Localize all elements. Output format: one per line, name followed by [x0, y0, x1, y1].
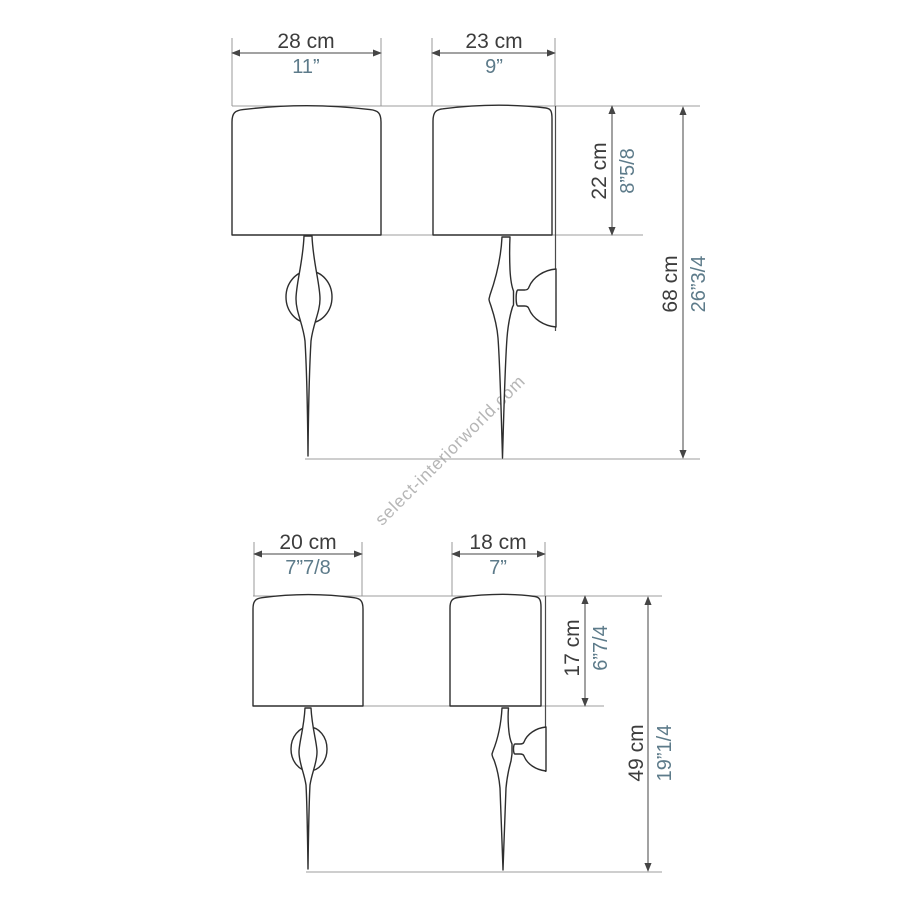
dim-label-cm: 68 cm	[659, 255, 682, 312]
wall-bracket	[516, 269, 556, 327]
dim-label-inch: 7”	[489, 557, 507, 579]
large-sconce-figure: 28 cm 11” 23 cm 9” 22 cm 8”5/8 68 cm 26”…	[232, 30, 710, 459]
large-front-view	[232, 106, 381, 456]
dim-label-inch: 7”7/8	[285, 557, 331, 579]
small-front-view	[253, 595, 363, 869]
dim-small-total-height: 49 cm 19”1/4	[625, 597, 676, 871]
dim-small-shade-height: 17 cm 6”7/4	[561, 596, 612, 706]
dim-label-cm: 20 cm	[279, 531, 336, 554]
dim-label-cm: 17 cm	[561, 619, 584, 676]
dim-small-side-depth: 18 cm 7”	[452, 531, 545, 579]
stem	[299, 708, 317, 869]
stem-blade	[492, 708, 512, 870]
dim-label-cm: 22 cm	[588, 142, 611, 199]
small-sconce-figure: 20 cm 7”7/8 18 cm 7” 17 cm 6”7/4 49 cm 1…	[253, 531, 676, 872]
wall-bracket	[514, 727, 547, 771]
dim-label-cm: 18 cm	[469, 531, 526, 554]
dim-label-inch: 9”	[485, 56, 503, 78]
dim-large-side-depth: 23 cm 9”	[432, 30, 555, 78]
dimension-drawing-page: select-interiorworld.com 28 cm 11”	[0, 0, 900, 900]
stem-blade	[489, 237, 514, 458]
dimension-diagram: select-interiorworld.com 28 cm 11”	[0, 0, 900, 900]
lampshade	[232, 106, 381, 235]
lampshade	[433, 105, 552, 235]
lampshade	[450, 594, 541, 706]
watermark-text: select-interiorworld.com	[371, 371, 529, 529]
dim-label-inch: 26”3/4	[688, 256, 710, 313]
lampshade	[253, 595, 363, 706]
small-side-view	[450, 594, 546, 870]
dim-label-inch: 6”7/4	[590, 625, 612, 671]
dim-label-cm: 23 cm	[465, 30, 522, 53]
dim-large-shade-height: 22 cm 8”5/8	[588, 106, 639, 235]
dim-large-front-width: 28 cm 11”	[232, 30, 381, 78]
dim-label-inch: 11”	[292, 56, 319, 78]
dim-large-total-height: 68 cm 26”3/4	[659, 107, 710, 458]
dim-label-inch: 19”1/4	[654, 725, 676, 782]
dim-label-inch: 8”5/8	[617, 148, 639, 194]
dim-label-cm: 28 cm	[277, 30, 334, 53]
stem	[296, 236, 320, 456]
dim-small-front-width: 20 cm 7”7/8	[254, 531, 362, 579]
dim-label-cm: 49 cm	[625, 724, 648, 781]
